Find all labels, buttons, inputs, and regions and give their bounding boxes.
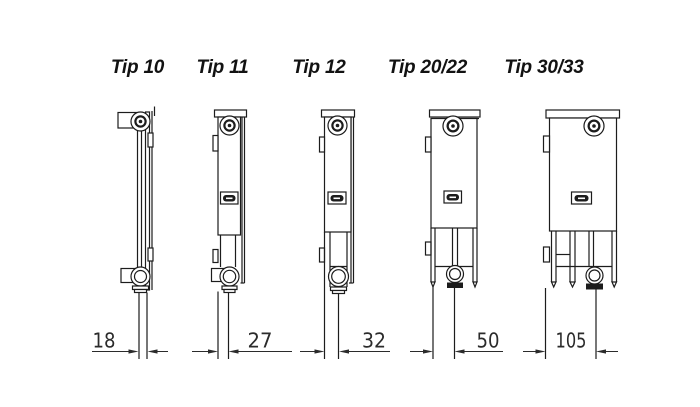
convector-section [221,235,236,267]
top-valve-icon [220,116,239,135]
dimension-value-tip-10: 18 [93,329,116,353]
dimension-tip-20-22: 50 [410,329,503,354]
convector-section [325,232,348,359]
radiator-tip-12-drawing [320,110,355,359]
dimension-tip-11: 27 [192,329,292,354]
radiator-tip-10-drawing [118,107,155,360]
dimension-tip-10: 18 [92,329,168,354]
bottom-valve-icon [131,267,150,293]
dimension-value-tip-11: 27 [248,329,273,353]
wall-clip [320,137,325,262]
bottom-valve-icon [586,267,603,290]
top-valve-icon [584,116,604,136]
radiator-tip-30-33-drawing [544,110,620,359]
wall-clip [544,136,550,262]
dimension-value-tip-20-22: 50 [477,329,500,353]
bottom-valve-icon [329,267,349,294]
bottom-valve-icon [447,266,464,289]
technical-line-drawing: 18 [0,0,700,407]
brand-badge [572,192,592,204]
brand-badge [444,191,462,203]
top-valve-icon [131,112,150,131]
convector-section [552,231,617,287]
wall-clip [426,137,432,255]
dimension-value-tip-12: 32 [362,329,386,353]
dimension-value-tip-30-33: 105 [556,329,587,353]
brand-badge [221,192,239,204]
dimension-tip-12: 32 [300,329,390,354]
radiator-tip-11-drawing [212,110,247,359]
top-valve-icon [328,116,347,135]
radiator-tip-20-22-drawing [426,110,481,359]
dimension-tip-30-33: 105 [523,329,618,354]
radiator-type-comparison-diagram: Tip 10 Tip 11 Tip 12 Tip 20/22 Tip 30/33 [0,0,700,407]
bottom-valve-icon [220,267,239,293]
pipe-lines [433,287,455,359]
pipe-lines [218,292,229,360]
top-valve-icon [443,116,463,136]
wall-clip [213,136,218,263]
brand-badge [328,192,346,204]
pipe-lines [139,293,147,360]
